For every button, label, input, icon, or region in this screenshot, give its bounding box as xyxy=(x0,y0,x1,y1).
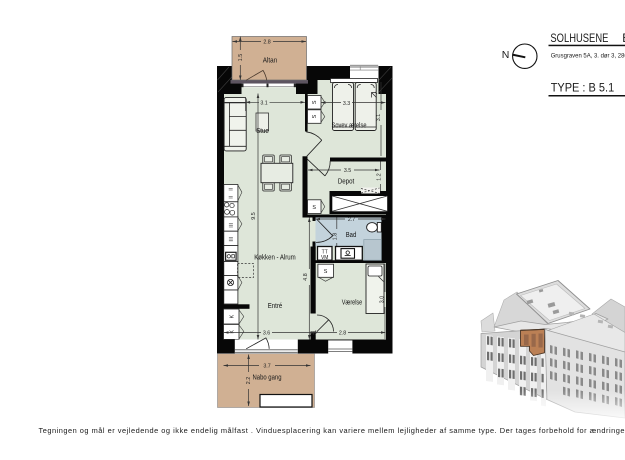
svg-text:Sovev ærelse: Sovev ærelse xyxy=(332,122,367,129)
svg-text:Depot: Depot xyxy=(338,179,355,186)
svg-text:1.8: 1.8 xyxy=(332,233,338,240)
svg-text:1.2: 1.2 xyxy=(376,173,382,180)
svg-text:S: S xyxy=(312,100,318,104)
svg-text:Bad: Bad xyxy=(346,232,357,239)
svg-text:3.0: 3.0 xyxy=(380,296,386,303)
svg-text:1.5: 1.5 xyxy=(238,54,244,61)
svg-text:S: S xyxy=(324,269,328,275)
svg-text:3.6: 3.6 xyxy=(263,331,270,337)
svg-text:3.1: 3.1 xyxy=(260,101,267,107)
svg-text:VM: VM xyxy=(321,255,329,261)
svg-text:2.7: 2.7 xyxy=(348,217,355,223)
svg-text:3.5: 3.5 xyxy=(344,168,351,174)
svg-text:S: S xyxy=(312,205,316,211)
svg-text:S: S xyxy=(312,114,318,118)
svg-text:3.7: 3.7 xyxy=(263,364,270,370)
svg-text:Grusgraven 5A, 3. dør 3, 286: Grusgraven 5A, 3. dør 3, 286 xyxy=(551,52,625,59)
svg-text:Altan: Altan xyxy=(263,56,278,65)
svg-text:2.8: 2.8 xyxy=(339,331,346,337)
svg-text:3.3: 3.3 xyxy=(343,101,350,107)
svg-text:4.8: 4.8 xyxy=(303,273,309,280)
svg-text:Tegningen og mål er vejledende: Tegningen og mål er vejledende og ikke e… xyxy=(39,426,625,435)
svg-text:9.5: 9.5 xyxy=(251,212,257,219)
svg-text:2.8: 2.8 xyxy=(263,40,270,46)
svg-text:SOLHUSENE: SOLHUSENE xyxy=(550,31,608,45)
svg-text:3.1: 3.1 xyxy=(376,114,382,121)
svg-text:TYPE : B 5.1: TYPE : B 5.1 xyxy=(551,81,615,95)
svg-text:2.2: 2.2 xyxy=(246,377,252,384)
svg-text:N: N xyxy=(502,49,510,61)
svg-text:K: K xyxy=(230,330,236,334)
svg-text:Værelse: Værelse xyxy=(342,300,363,307)
svg-text:Nabo gang: Nabo gang xyxy=(253,375,282,382)
svg-text:Køkken - Alrum: Køkken - Alrum xyxy=(254,255,296,262)
svg-text:K: K xyxy=(230,314,236,318)
svg-text:Entré: Entré xyxy=(268,303,283,310)
